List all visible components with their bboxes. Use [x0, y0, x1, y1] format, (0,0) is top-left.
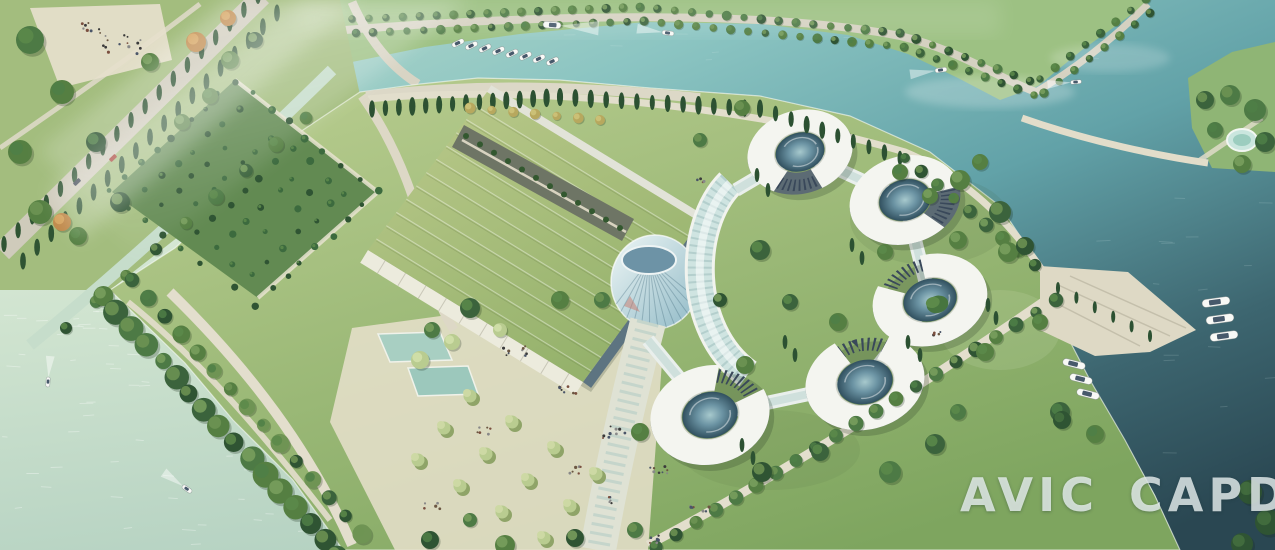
pine-tree	[360, 202, 365, 207]
person	[574, 466, 577, 469]
courtyard-tree	[575, 200, 581, 206]
person	[574, 392, 577, 395]
cone-opening	[622, 246, 676, 274]
poplar-tree	[986, 298, 991, 312]
person	[507, 349, 510, 352]
pine-tree	[345, 216, 351, 222]
person	[524, 345, 526, 347]
pine-tree	[306, 189, 313, 196]
courtyard-tree	[617, 225, 623, 231]
poplar-tree	[860, 251, 865, 265]
ripple	[168, 498, 177, 499]
poplar-tree	[1111, 311, 1115, 323]
watermark-suffix: CAPDI	[1129, 468, 1275, 522]
poplar-tree	[773, 106, 778, 122]
poplar-tree	[423, 98, 428, 114]
person	[623, 432, 626, 435]
person	[689, 506, 692, 509]
poplar-tree	[804, 116, 810, 133]
pine-tree	[252, 303, 259, 310]
person	[478, 431, 481, 434]
pine-tree	[229, 261, 235, 267]
person	[104, 46, 107, 49]
poplar-tree	[369, 100, 375, 117]
poplar-tree	[850, 238, 855, 252]
poplar-tree	[665, 95, 671, 112]
courtyard-tree	[547, 183, 553, 189]
person	[139, 47, 142, 50]
courtyard-tree	[603, 217, 609, 223]
poplar-tree	[918, 348, 923, 362]
person	[90, 29, 93, 32]
person	[486, 427, 488, 429]
poplar-tree	[740, 438, 745, 452]
person	[99, 32, 101, 34]
person	[81, 22, 84, 25]
person	[615, 432, 618, 435]
person	[424, 502, 426, 504]
pine-tree	[197, 261, 202, 266]
person	[666, 469, 668, 471]
person	[610, 502, 612, 504]
person	[524, 354, 527, 357]
person	[127, 42, 129, 44]
person	[102, 44, 105, 47]
person	[82, 27, 84, 29]
person	[650, 536, 653, 539]
courtyard-tree	[533, 175, 539, 181]
person	[436, 502, 439, 505]
poplar-tree	[383, 100, 388, 116]
pine-tree	[306, 157, 314, 165]
person	[938, 333, 941, 336]
pine-tree	[229, 230, 236, 237]
poplar-tree	[543, 89, 549, 108]
person	[105, 35, 107, 37]
person	[608, 496, 610, 498]
person	[610, 425, 612, 427]
courtyard-tree	[505, 158, 511, 164]
poplar-tree	[436, 96, 442, 114]
person	[572, 471, 574, 473]
poplar-tree	[882, 144, 887, 160]
courtyard-tree	[589, 208, 595, 214]
person	[653, 467, 655, 469]
ripple	[70, 360, 75, 361]
poplar-tree	[450, 96, 455, 111]
ripple	[712, 52, 719, 53]
person	[705, 510, 707, 512]
poplar-tree	[1130, 320, 1134, 332]
pine-tree	[294, 205, 301, 212]
person	[933, 331, 936, 334]
person	[572, 392, 575, 395]
person	[577, 472, 579, 474]
person	[127, 45, 130, 48]
poplar-tree	[711, 98, 717, 115]
ripple	[110, 368, 121, 369]
person	[136, 42, 139, 45]
courtyard-tree	[561, 192, 567, 198]
poplar-tree	[819, 122, 825, 139]
ripple	[99, 328, 107, 329]
person	[107, 51, 110, 54]
poplar-tree	[1056, 282, 1060, 294]
ripple	[1153, 284, 1159, 285]
pine-tree	[214, 245, 219, 250]
person	[658, 471, 661, 474]
person	[98, 28, 100, 30]
poplar-tree	[572, 89, 578, 107]
pine-tree	[255, 175, 263, 183]
poplar-tree	[866, 139, 871, 154]
pine-tree	[319, 148, 325, 154]
pine-tree	[194, 229, 199, 234]
person	[702, 510, 705, 513]
courtyard-tree	[463, 133, 469, 139]
ripple	[19, 354, 26, 355]
person	[560, 389, 562, 391]
poplar-tree	[851, 134, 856, 149]
courtyard-tree	[477, 141, 483, 147]
pine-tree	[178, 246, 184, 252]
person	[696, 179, 699, 182]
pine-tree	[242, 188, 248, 194]
poplar-tree	[588, 90, 594, 108]
person	[438, 507, 441, 510]
poplar-tree	[48, 225, 54, 242]
person	[662, 471, 664, 473]
pine-tree	[286, 273, 292, 279]
ripple	[1164, 360, 1175, 361]
person	[602, 437, 604, 439]
pine-tree	[265, 260, 270, 265]
poplar-tree	[634, 93, 640, 109]
poplar-tree	[1074, 292, 1078, 304]
person	[939, 331, 941, 333]
poplar-tree	[726, 99, 732, 116]
poplar-tree	[1148, 330, 1152, 342]
person	[615, 428, 618, 431]
person	[649, 467, 651, 469]
person	[699, 177, 702, 180]
poplar-tree	[530, 90, 536, 107]
person	[655, 542, 658, 545]
watermark: AVIC CAPDI	[960, 468, 1275, 522]
pine-tree	[331, 233, 338, 240]
poplar-tree	[695, 96, 701, 115]
poplar-tree	[557, 88, 563, 106]
person	[522, 347, 525, 350]
person	[84, 24, 87, 27]
ripple	[1096, 240, 1110, 241]
poplar-tree	[680, 96, 686, 113]
person	[666, 472, 668, 474]
person	[567, 385, 570, 388]
person	[608, 432, 611, 435]
poplar-tree	[906, 335, 911, 349]
pine-tree	[231, 284, 238, 291]
person	[563, 391, 565, 393]
pine-tree	[338, 163, 344, 169]
person	[602, 434, 605, 437]
person	[127, 36, 129, 38]
poplar-tree	[396, 99, 402, 116]
person	[568, 472, 571, 475]
person	[649, 542, 651, 544]
person	[478, 426, 480, 428]
person	[702, 180, 705, 183]
person	[107, 39, 109, 41]
ripple	[73, 319, 79, 320]
person	[86, 29, 89, 32]
courtyard-tree	[519, 166, 525, 172]
person	[476, 431, 478, 433]
person	[506, 354, 508, 356]
pine-tree	[295, 229, 301, 235]
pine-tree	[272, 158, 279, 165]
person	[508, 352, 510, 354]
pine-tree	[209, 215, 216, 222]
poplar-tree	[15, 222, 20, 238]
watermark-brand: AVIC	[960, 468, 1099, 522]
person	[136, 52, 139, 55]
courtyard-tree	[491, 150, 497, 156]
poplar-tree	[766, 183, 771, 197]
pine-tree	[341, 191, 347, 197]
person	[579, 466, 581, 468]
pine-tree	[375, 187, 383, 195]
person	[87, 22, 89, 24]
poplar-tree	[477, 94, 482, 110]
person	[656, 538, 659, 541]
ripple	[41, 487, 51, 488]
pine-tree	[228, 202, 235, 209]
person	[502, 347, 505, 350]
pine-tree	[270, 285, 276, 291]
person	[609, 499, 611, 501]
poplar-tree	[1093, 301, 1097, 313]
person	[489, 427, 491, 429]
person	[423, 507, 426, 510]
poplar-tree	[34, 239, 40, 256]
poplar-tree	[755, 168, 760, 182]
poplar-tree	[994, 311, 999, 325]
person	[558, 386, 561, 389]
person	[607, 436, 610, 439]
architectural-aerial-rendering: AVIC CAPDI	[0, 0, 1275, 550]
person	[123, 34, 125, 36]
person	[487, 433, 490, 436]
poplar-tree	[757, 100, 763, 117]
poplar-tree	[409, 97, 415, 116]
poplar-tree	[20, 253, 26, 270]
poplar-tree	[835, 128, 840, 143]
ripple	[127, 354, 141, 355]
person	[118, 43, 120, 45]
poplar-tree	[619, 92, 625, 109]
poplar-tree	[517, 91, 523, 109]
person	[618, 428, 621, 431]
person	[652, 470, 655, 473]
ripple	[1208, 347, 1220, 348]
poplar-tree	[650, 95, 655, 110]
person	[434, 505, 437, 508]
poplar-tree	[788, 111, 793, 127]
poplar-tree	[751, 451, 756, 465]
pine-tree	[358, 177, 363, 182]
poplar-tree	[783, 335, 788, 349]
person	[707, 505, 710, 508]
person	[139, 39, 141, 41]
person	[663, 465, 666, 468]
poplar-tree	[793, 348, 798, 362]
poplar-tree	[503, 92, 509, 110]
poplar-tree	[1, 236, 6, 252]
pine-tree	[250, 272, 255, 277]
poplar-tree	[603, 91, 609, 108]
person	[657, 535, 659, 537]
